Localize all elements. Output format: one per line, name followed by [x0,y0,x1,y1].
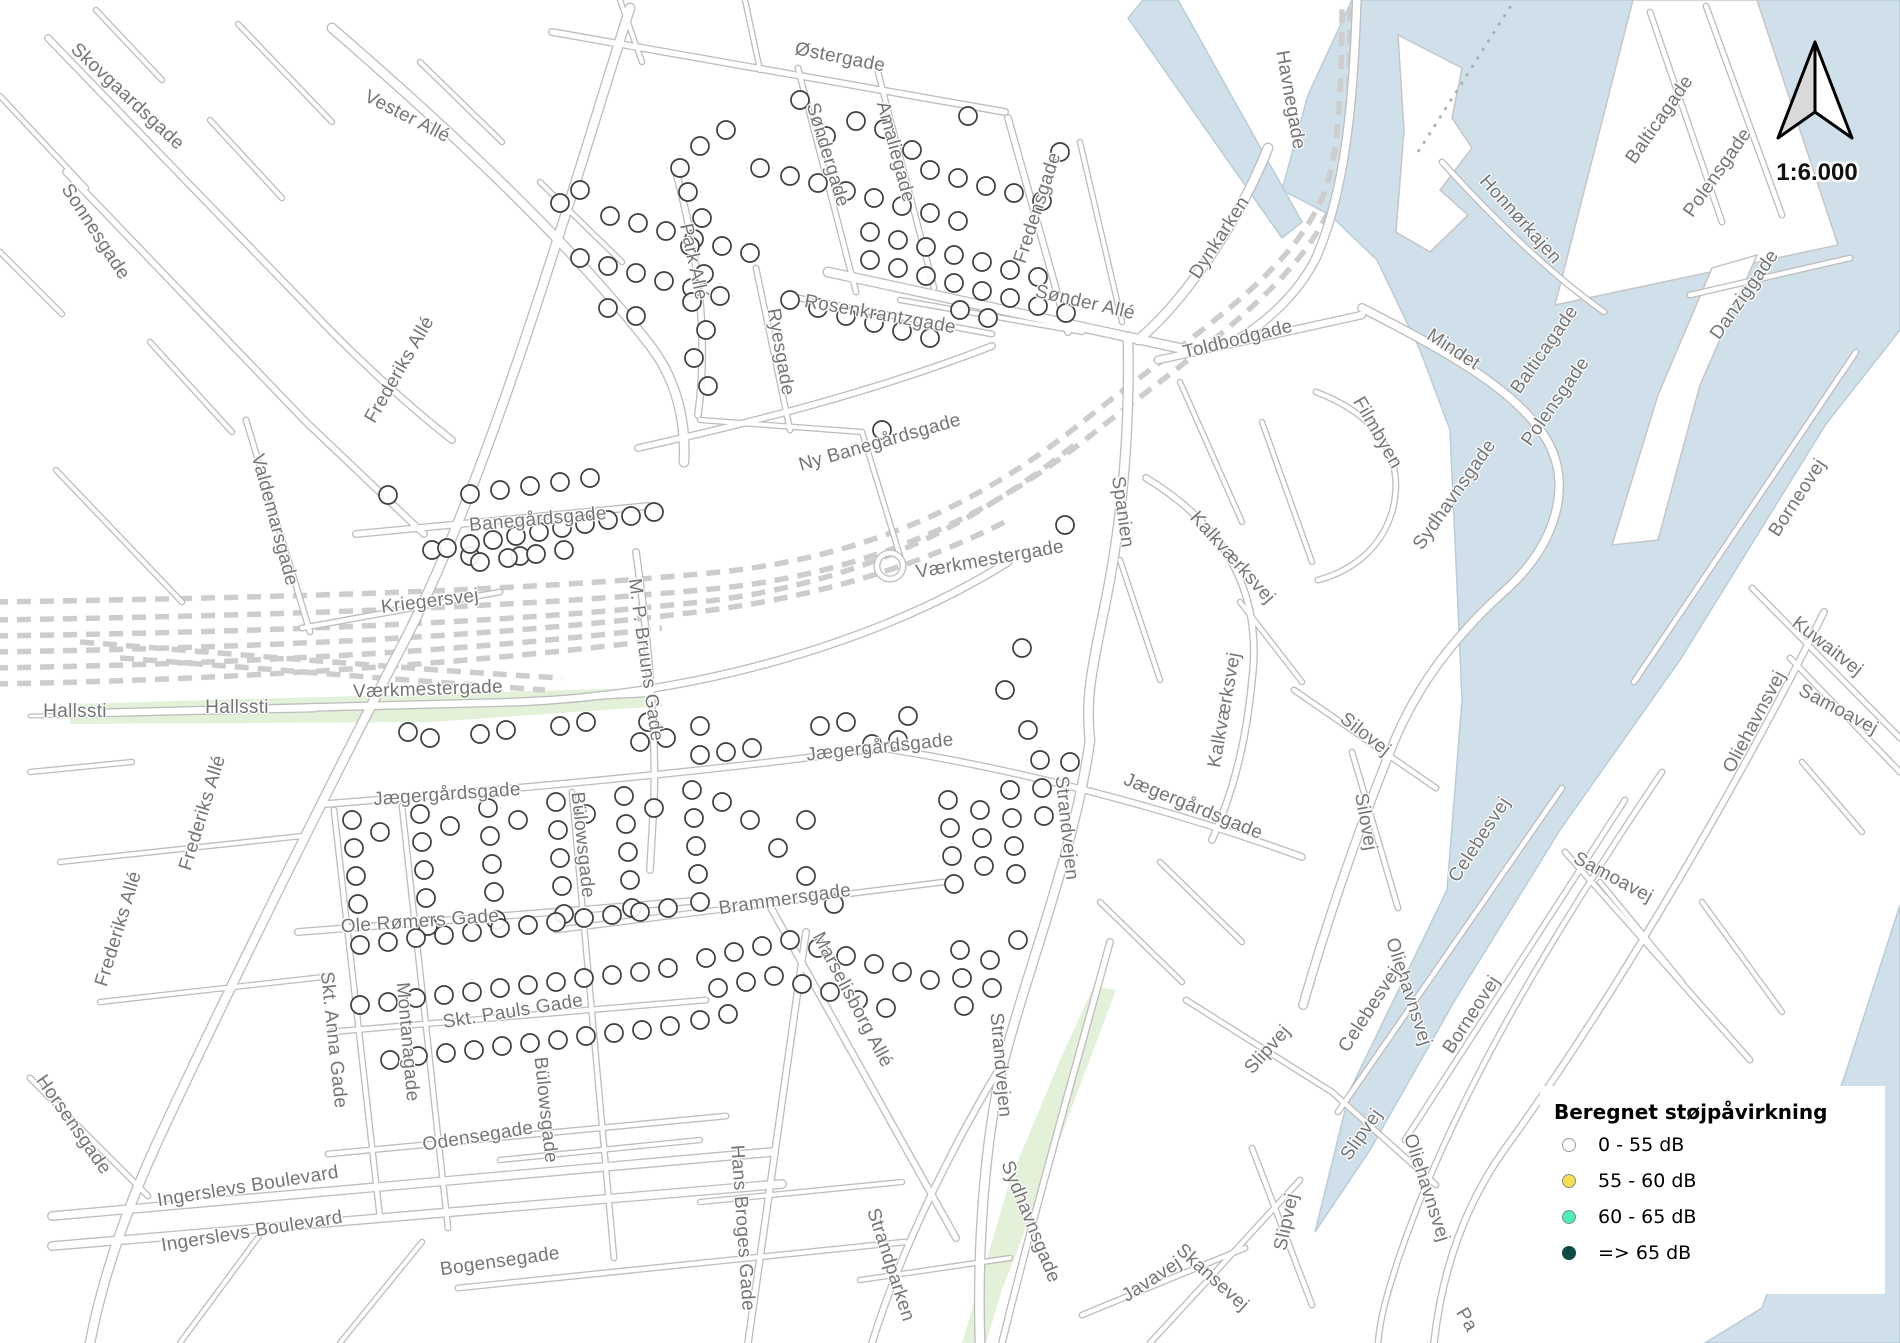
noise-point [521,477,539,495]
noise-point [1001,781,1019,799]
noise-point [951,301,969,319]
noise-point [917,238,935,256]
noise-point [619,843,637,861]
railway-track [0,0,1342,602]
noise-point [347,867,365,885]
noise-point [939,791,957,809]
noise-point [343,811,361,829]
noise-point [599,299,617,317]
noise-point [837,182,855,200]
noise-point [691,1011,709,1029]
noise-point [683,293,701,311]
noise-point [1033,779,1051,797]
noise-point [1029,268,1047,286]
noise-point [549,1031,567,1049]
road-fill [1150,1180,1300,1343]
noise-point [571,249,589,267]
noise-point [493,1037,511,1055]
noise-point [683,781,701,799]
noise-point [973,829,991,847]
noise-point [485,883,503,901]
noise-point [713,237,731,255]
noise-point [685,809,703,827]
noise-point [983,979,1001,997]
noise-point [1057,304,1075,322]
noise-point [1009,931,1027,949]
road-fill [1702,902,1782,1012]
noise-point [471,553,489,571]
noise-point [877,999,895,1017]
noise-point [551,849,569,867]
road-fill [1160,862,1242,942]
road-fill [326,748,1302,857]
noise-point [979,309,997,327]
noise-point [1031,751,1049,769]
noise-point [659,899,677,917]
noise-point [551,473,569,491]
noise-point [417,889,435,907]
road-fill [60,836,302,862]
noise-point [1005,837,1023,855]
road-fill [1316,392,1396,580]
noise-point [631,903,649,921]
noise-point [697,949,715,967]
road-casing [1146,478,1254,840]
noise-point [519,916,537,934]
noise-point [351,936,369,954]
noise-point [479,799,497,817]
noise-point [437,1044,455,1062]
noise-point [781,931,799,949]
noise-point [695,265,713,283]
noise-point [581,469,599,487]
noise-point [793,975,811,993]
noise-point [1033,192,1051,210]
noise-point [527,545,545,563]
noise-point [1035,807,1053,825]
road-fill [246,420,310,632]
noise-point [953,969,971,987]
noise-point [576,515,594,533]
road-fill [1262,422,1312,562]
legend-label: 0 - 55 dB [1598,1134,1684,1156]
noise-point [809,174,827,192]
noise-point [627,264,645,282]
noise-point [438,539,456,557]
legend-swatch-icon [1562,1210,1576,1224]
road-fill [1082,1248,1245,1315]
noise-point [657,222,675,240]
noise-legend: Beregnet støjpåvirkning 0 - 55 dB55 - 60… [1540,1086,1885,1294]
noise-point [837,713,855,731]
noise-point [693,209,711,227]
road-fill [48,38,452,440]
noise-point [599,257,617,275]
noise-point [943,847,961,865]
road-fill [52,1152,772,1216]
noise-point [817,127,835,145]
noise-point [753,937,771,955]
noise-point [837,307,855,325]
noise-point [1003,809,1021,827]
noise-point [699,377,717,395]
noise-point [381,1051,399,1069]
noise-point [873,421,891,439]
noise-point [659,959,677,977]
noise-point [345,839,363,857]
noise-point [921,204,939,222]
noise-point [689,865,707,883]
noise-point [973,282,991,300]
map-scale: 1:6.000 [1776,159,1857,187]
noise-point [981,951,999,969]
noise-point [893,322,911,340]
noise-point [751,159,769,177]
noise-point [1013,639,1031,657]
noise-point [975,857,993,875]
road-fill [0,252,62,314]
noise-point [691,717,709,735]
noise-point [507,527,525,545]
legend-item: 60 - 65 dB [1554,1206,1865,1228]
road-fill [1565,852,1750,1060]
noise-point [945,875,963,893]
noise-point [571,181,589,199]
road-fill [302,592,500,628]
noise-point [407,929,425,947]
noise-point [791,91,809,109]
noise-point [629,214,647,232]
noise-point [691,746,709,764]
road-fill [96,10,162,80]
noise-point [435,926,453,944]
noise-point [717,743,735,761]
noise-point [849,991,867,1009]
road-fill [552,32,1005,112]
noise-point [351,996,369,1014]
noise-point [633,1021,651,1039]
noise-point [679,183,697,201]
noise-point [685,349,703,367]
noise-point [484,531,502,549]
pier-area [1396,35,1472,252]
noise-point [463,923,481,941]
legend-swatch-icon [1562,1174,1576,1188]
noise-point [865,955,883,973]
road-casing [326,748,1302,857]
noise-point [627,307,645,325]
noise-point [1056,516,1074,534]
noise-point [719,1005,737,1023]
map-canvas[interactable]: SkovgaardsgadeSonnesgadeVester AlléØster… [0,0,1900,1343]
noise-point [949,212,967,230]
noise-point [1001,261,1019,279]
road-fill [745,0,760,70]
noise-point [713,793,731,811]
noise-point [711,287,729,305]
noise-point [697,321,715,339]
noise-point [491,919,509,937]
legend-label: => 65 dB [1598,1242,1691,1264]
noise-point [471,725,489,743]
noise-point [917,267,935,285]
road-fill [1180,382,1242,522]
noise-point [617,815,635,833]
noise-point [825,895,843,913]
noise-point [631,733,649,751]
noise-point [741,244,759,262]
noise-point [893,197,911,215]
noise-point [379,486,397,504]
noise-point [863,735,881,753]
noise-point [463,983,481,1001]
noise-point [415,861,433,879]
noise-point [717,121,735,139]
noise-point [603,966,621,984]
noise-point [889,731,907,749]
north-arrow-icon [1772,40,1858,142]
noise-point [681,237,699,255]
noise-point [483,855,501,873]
noise-point [631,963,649,981]
road-fill [420,62,502,142]
road-fill [862,432,900,556]
noise-point [409,1047,427,1065]
road-fill [180,1232,262,1343]
noise-point [797,867,815,885]
noise-point [547,973,565,991]
noise-point [889,259,907,277]
noise-point [601,207,619,225]
noise-point [921,329,939,347]
road-fill [1080,142,1122,322]
noise-point [691,893,709,911]
noise-point [709,979,727,997]
noise-point [605,1024,623,1042]
road-fill [210,120,282,198]
noise-point [551,194,569,212]
noise-point [519,976,537,994]
noise-point [461,485,479,503]
noise-point [861,223,879,241]
road-fill [0,96,86,188]
noise-point [921,161,939,179]
road-fill [30,762,132,772]
road-fill [238,24,332,122]
road-fill [340,1242,422,1343]
noise-point [809,939,827,957]
noise-point [555,541,573,559]
noise-point [893,963,911,981]
road-fill [328,1116,726,1154]
legend-item: => 65 dB [1554,1242,1865,1264]
road-fill [458,1242,905,1288]
noise-point [435,986,453,1004]
noise-point [547,913,565,931]
legend-title: Beregnet støjpåvirkning [1554,1100,1865,1124]
road-fill [1146,478,1254,840]
noise-point [371,823,389,841]
noise-point [889,231,907,249]
road-fill [30,1078,148,1196]
noise-point [421,729,439,747]
water-area [1128,0,1302,238]
noise-point [797,811,815,829]
noise-point [941,819,959,837]
noise-point [1019,721,1037,739]
noise-point [737,973,755,991]
noise-point [743,739,761,757]
noise-point [899,707,917,725]
legend-label: 60 - 65 dB [1598,1206,1696,1228]
noise-point [655,272,673,290]
noise-point [945,274,963,292]
noise-point [1061,753,1079,771]
noise-point [509,811,527,829]
noise-point [661,1017,679,1035]
noise-point [765,967,783,985]
road-fill [1120,560,1160,680]
noise-point [577,713,595,731]
noise-point [530,523,548,541]
noise-point [1007,865,1025,883]
road-fill [150,342,232,432]
noise-point [973,253,991,271]
noise-point [837,947,855,965]
noise-point [687,837,705,855]
noise-point [603,906,621,924]
noise-point [481,827,499,845]
noise-point [847,112,865,130]
noise-point [411,805,429,823]
road-fill [100,976,332,1002]
noise-point [959,107,977,125]
noise-point [725,943,743,961]
noise-point [441,817,459,835]
noise-point [615,787,633,805]
noise-point [491,979,509,997]
noise-point [781,291,799,309]
noise-point [977,177,995,195]
noise-point [996,681,1014,699]
noise-point [622,507,640,525]
noise-point [865,314,883,332]
legend-label: 55 - 60 dB [1598,1170,1696,1192]
noise-point [951,941,969,959]
noise-point [645,503,663,521]
noise-point [379,933,397,951]
noise-point [769,839,787,857]
noise-point [575,969,593,987]
noise-point [903,141,921,159]
noise-point [465,1041,483,1059]
road-fill [748,932,806,1343]
noise-point [955,997,973,1015]
noise-point [407,989,425,1007]
noise-point [875,120,893,138]
noise-point [781,167,799,185]
noise-point [547,793,565,811]
noise-point [549,821,567,839]
noise-point [379,993,397,1011]
noise-point [821,983,839,1001]
noise-point [413,833,431,851]
noise-point [945,246,963,264]
noise-point [577,805,595,823]
noise-point [809,299,827,317]
noise-point [811,717,829,735]
road-fill [1832,702,1900,772]
road-casing [1316,392,1396,580]
legend-swatch-icon [1562,1246,1576,1260]
road-fill [1802,762,1862,832]
noise-point [645,799,663,817]
legend-item: 55 - 60 dB [1554,1170,1865,1192]
noise-point [461,535,479,553]
road-fill [1186,1000,1332,1092]
noise-point [575,909,593,927]
noise-point [671,159,689,177]
road-fill [56,470,182,602]
noise-point [1001,289,1019,307]
noise-point [639,713,657,731]
road-casing [979,338,1128,1343]
noise-point [551,717,569,735]
legend-swatch-icon [1562,1138,1576,1152]
noise-point [553,877,571,895]
road-fill [52,1184,782,1246]
noise-point [949,169,967,187]
noise-point [491,481,509,499]
noise-point [521,1034,539,1052]
noise-point [553,519,571,537]
legend-rows: 0 - 55 dB55 - 60 dB60 - 65 dB=> 65 dB [1554,1134,1865,1264]
noise-point [691,137,709,155]
noise-point [621,871,639,889]
noise-point [349,895,367,913]
noise-point [1051,143,1069,161]
noise-point [1005,184,1023,202]
noise-point [921,971,939,989]
noise-point [599,511,617,529]
noise-point [741,811,759,829]
noise-point [971,801,989,819]
noise-point [497,721,515,739]
noise-point [861,251,879,269]
noise-point [657,729,675,747]
noise-point [399,723,417,741]
noise-point [577,1027,595,1045]
legend-item: 0 - 55 dB [1554,1134,1865,1156]
noise-point [865,189,883,207]
noise-point [1029,297,1047,315]
road-fill [572,792,614,1258]
road-fill [979,338,1128,1343]
noise-point [499,549,517,567]
